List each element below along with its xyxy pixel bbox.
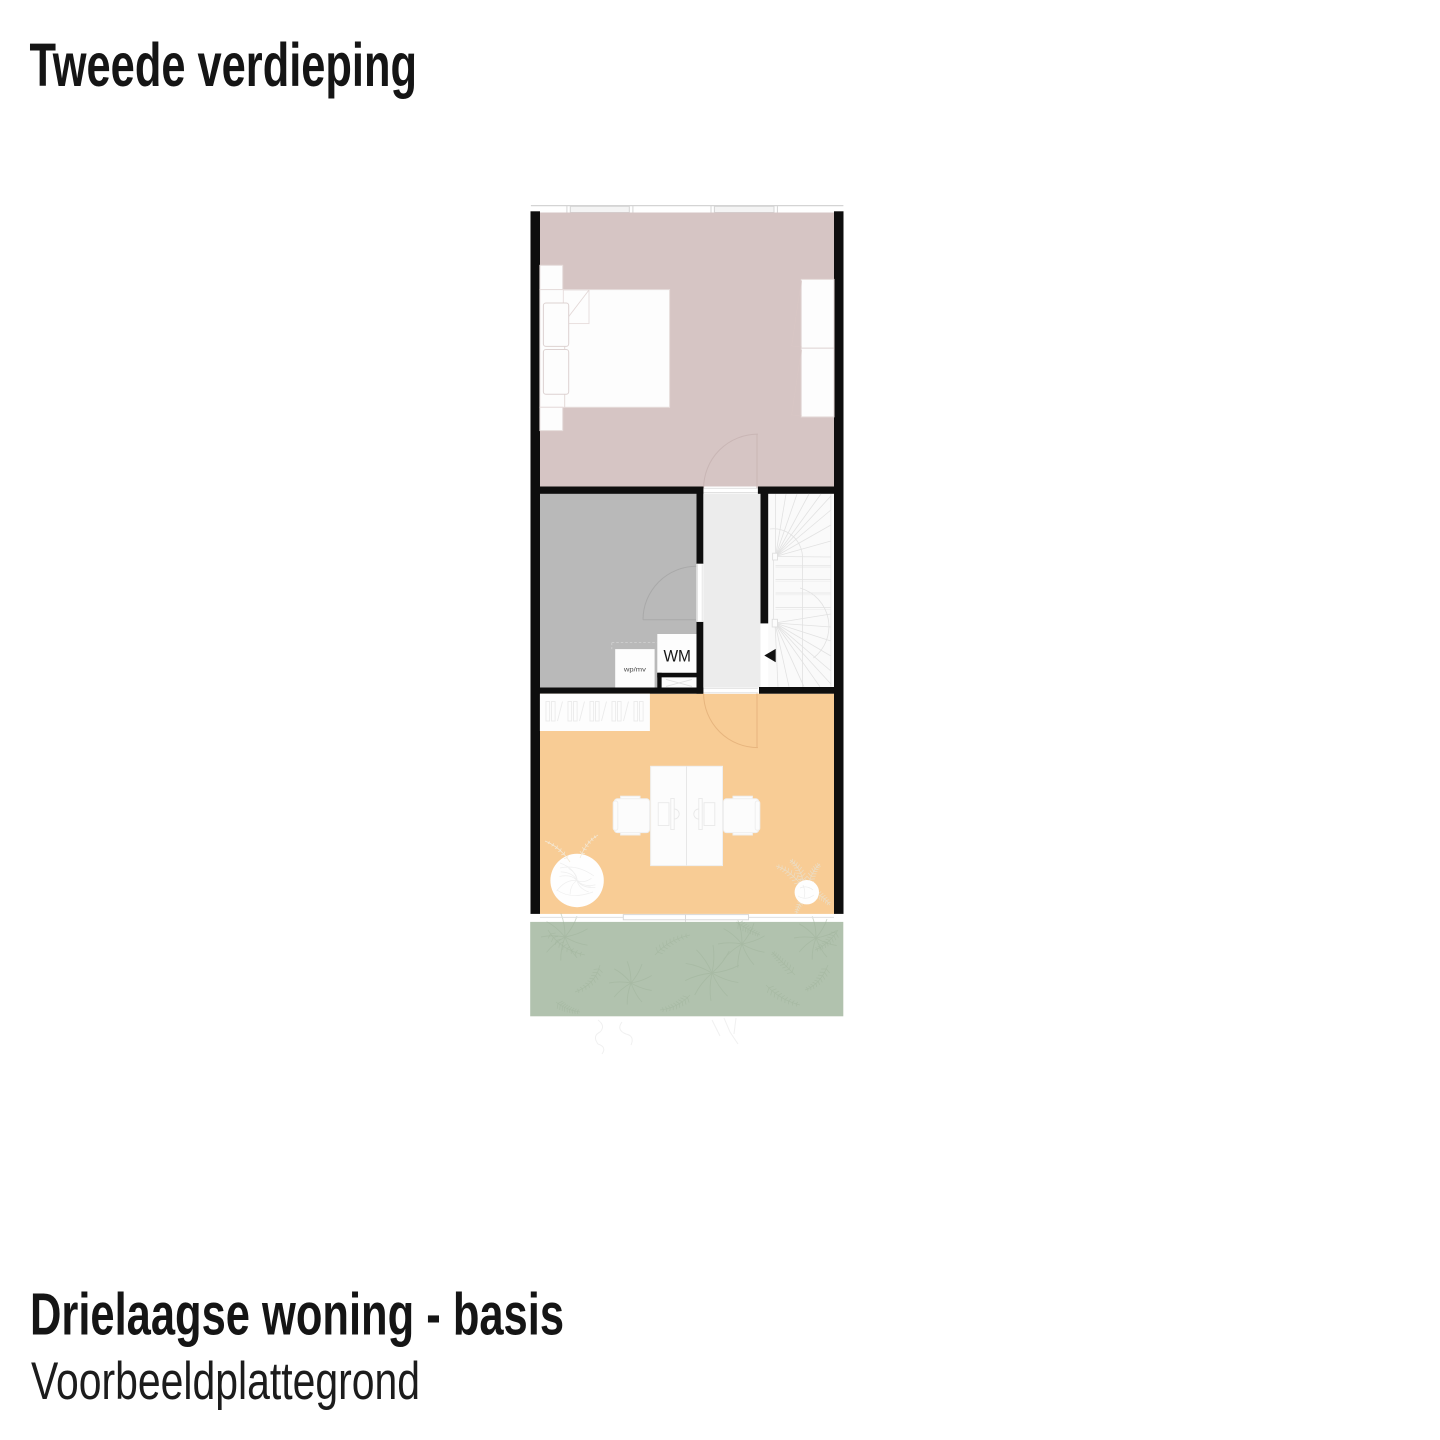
svg-text:Tweede verdieping: Tweede verdieping — [30, 31, 418, 99]
svg-text:WM: WM — [663, 648, 691, 666]
svg-text:Voorbeeldplattegrond: Voorbeeldplattegrond — [31, 1352, 420, 1411]
svg-text:wp/mv: wp/mv — [623, 667, 647, 674]
svg-text:Drielaagse woning - basis: Drielaagse woning - basis — [30, 1281, 564, 1348]
